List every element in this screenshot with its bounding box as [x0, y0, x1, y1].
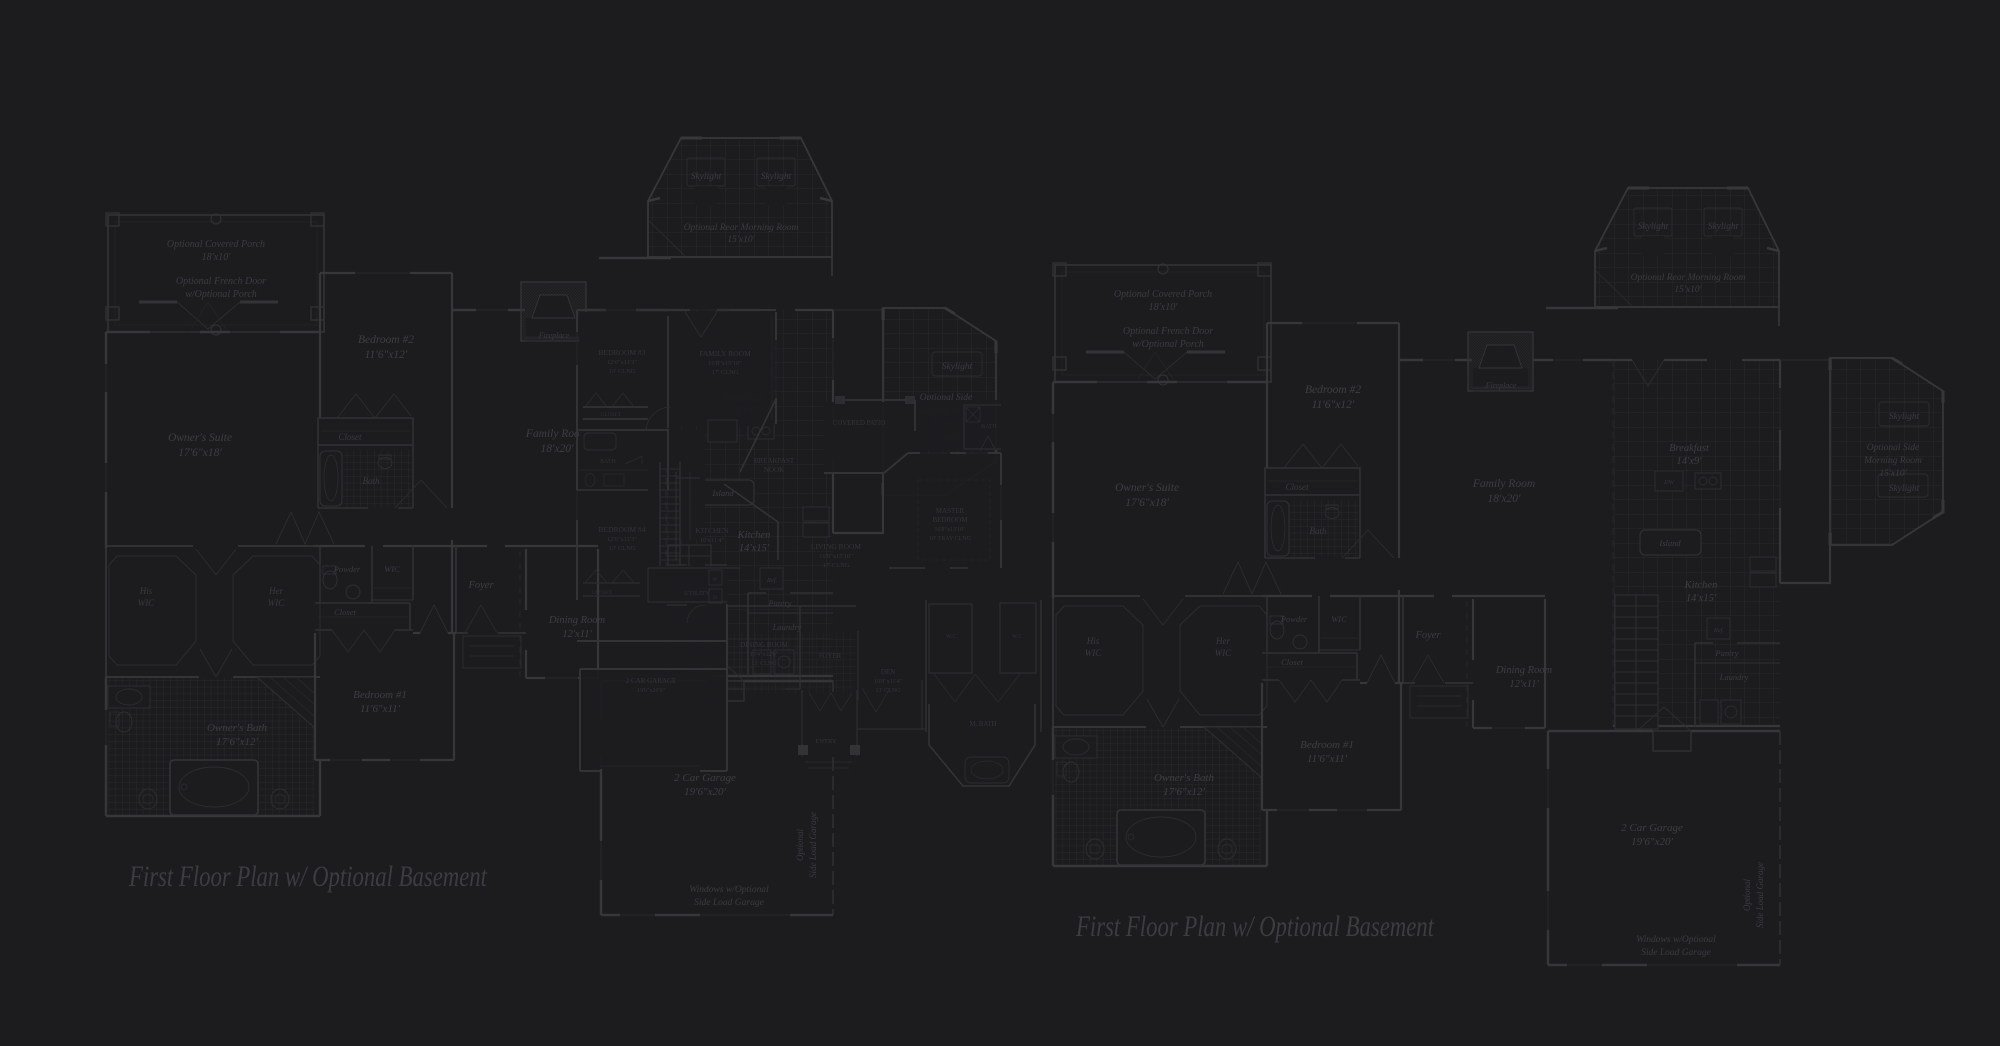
svg-text:LIVING ROOM: LIVING ROOM: [811, 542, 862, 551]
svg-text:10'8"x11'4": 10'8"x11'4": [874, 679, 902, 685]
svg-text:BATH: BATH: [600, 459, 616, 465]
svg-text:W.C.: W.C.: [946, 634, 959, 640]
svg-text:13' CLNG: 13' CLNG: [609, 368, 636, 375]
svg-text:12'6"x11'3": 12'6"x11'3": [607, 359, 638, 366]
svg-text:MASTER: MASTER: [936, 507, 965, 515]
svg-text:W: W: [712, 577, 718, 583]
svg-text:2 CAR GARAGE: 2 CAR GARAGE: [626, 677, 677, 685]
svg-text:BEDROOM #3: BEDROOM #3: [599, 348, 646, 357]
svg-text:D: D: [713, 595, 717, 601]
svg-text:BEDROOM #4: BEDROOM #4: [599, 525, 646, 534]
svg-text:16'8"x15'10": 16'8"x15'10": [708, 360, 742, 367]
svg-text:UTILITY: UTILITY: [684, 590, 710, 597]
svg-text:CLOSET: CLOSET: [601, 412, 622, 418]
svg-text:BATH: BATH: [981, 424, 997, 430]
svg-text:COVERED PATIO: COVERED PATIO: [833, 420, 886, 427]
svg-text:FAMILY ROOM: FAMILY ROOM: [699, 349, 751, 358]
svg-text:CLOSET: CLOSET: [592, 590, 613, 596]
svg-text:17' CLNG: 17' CLNG: [712, 369, 739, 376]
svg-text:KITCHEN: KITCHEN: [696, 526, 729, 535]
svg-text:M. BATH: M. BATH: [969, 721, 996, 728]
svg-text:W.C.: W.C.: [1012, 634, 1025, 640]
svg-text:13' CLNG: 13' CLNG: [609, 545, 636, 552]
svg-text:17' CLNG: 17' CLNG: [823, 562, 850, 569]
svg-text:10'x11'4": 10'x11'4": [700, 537, 725, 544]
svg-text:NOOK: NOOK: [764, 466, 784, 474]
svg-text:16'0"x15'10": 16'0"x15'10": [819, 553, 853, 560]
svg-text:10' TRAY CLNG: 10' TRAY CLNG: [929, 536, 972, 542]
svg-text:BREAKFAST: BREAKFAST: [754, 457, 795, 465]
svg-text:19'6"x20'6": 19'6"x20'6": [637, 688, 666, 694]
svg-text:ENTRY: ENTRY: [815, 738, 837, 745]
svg-text:FOYER: FOYER: [819, 653, 842, 660]
svg-text:DEN: DEN: [881, 668, 895, 676]
svg-text:12'6"x11'3": 12'6"x11'3": [607, 536, 638, 543]
svg-text:16'8"x13'10": 16'8"x13'10": [934, 527, 966, 533]
svg-text:BEDROOM: BEDROOM: [932, 516, 968, 524]
